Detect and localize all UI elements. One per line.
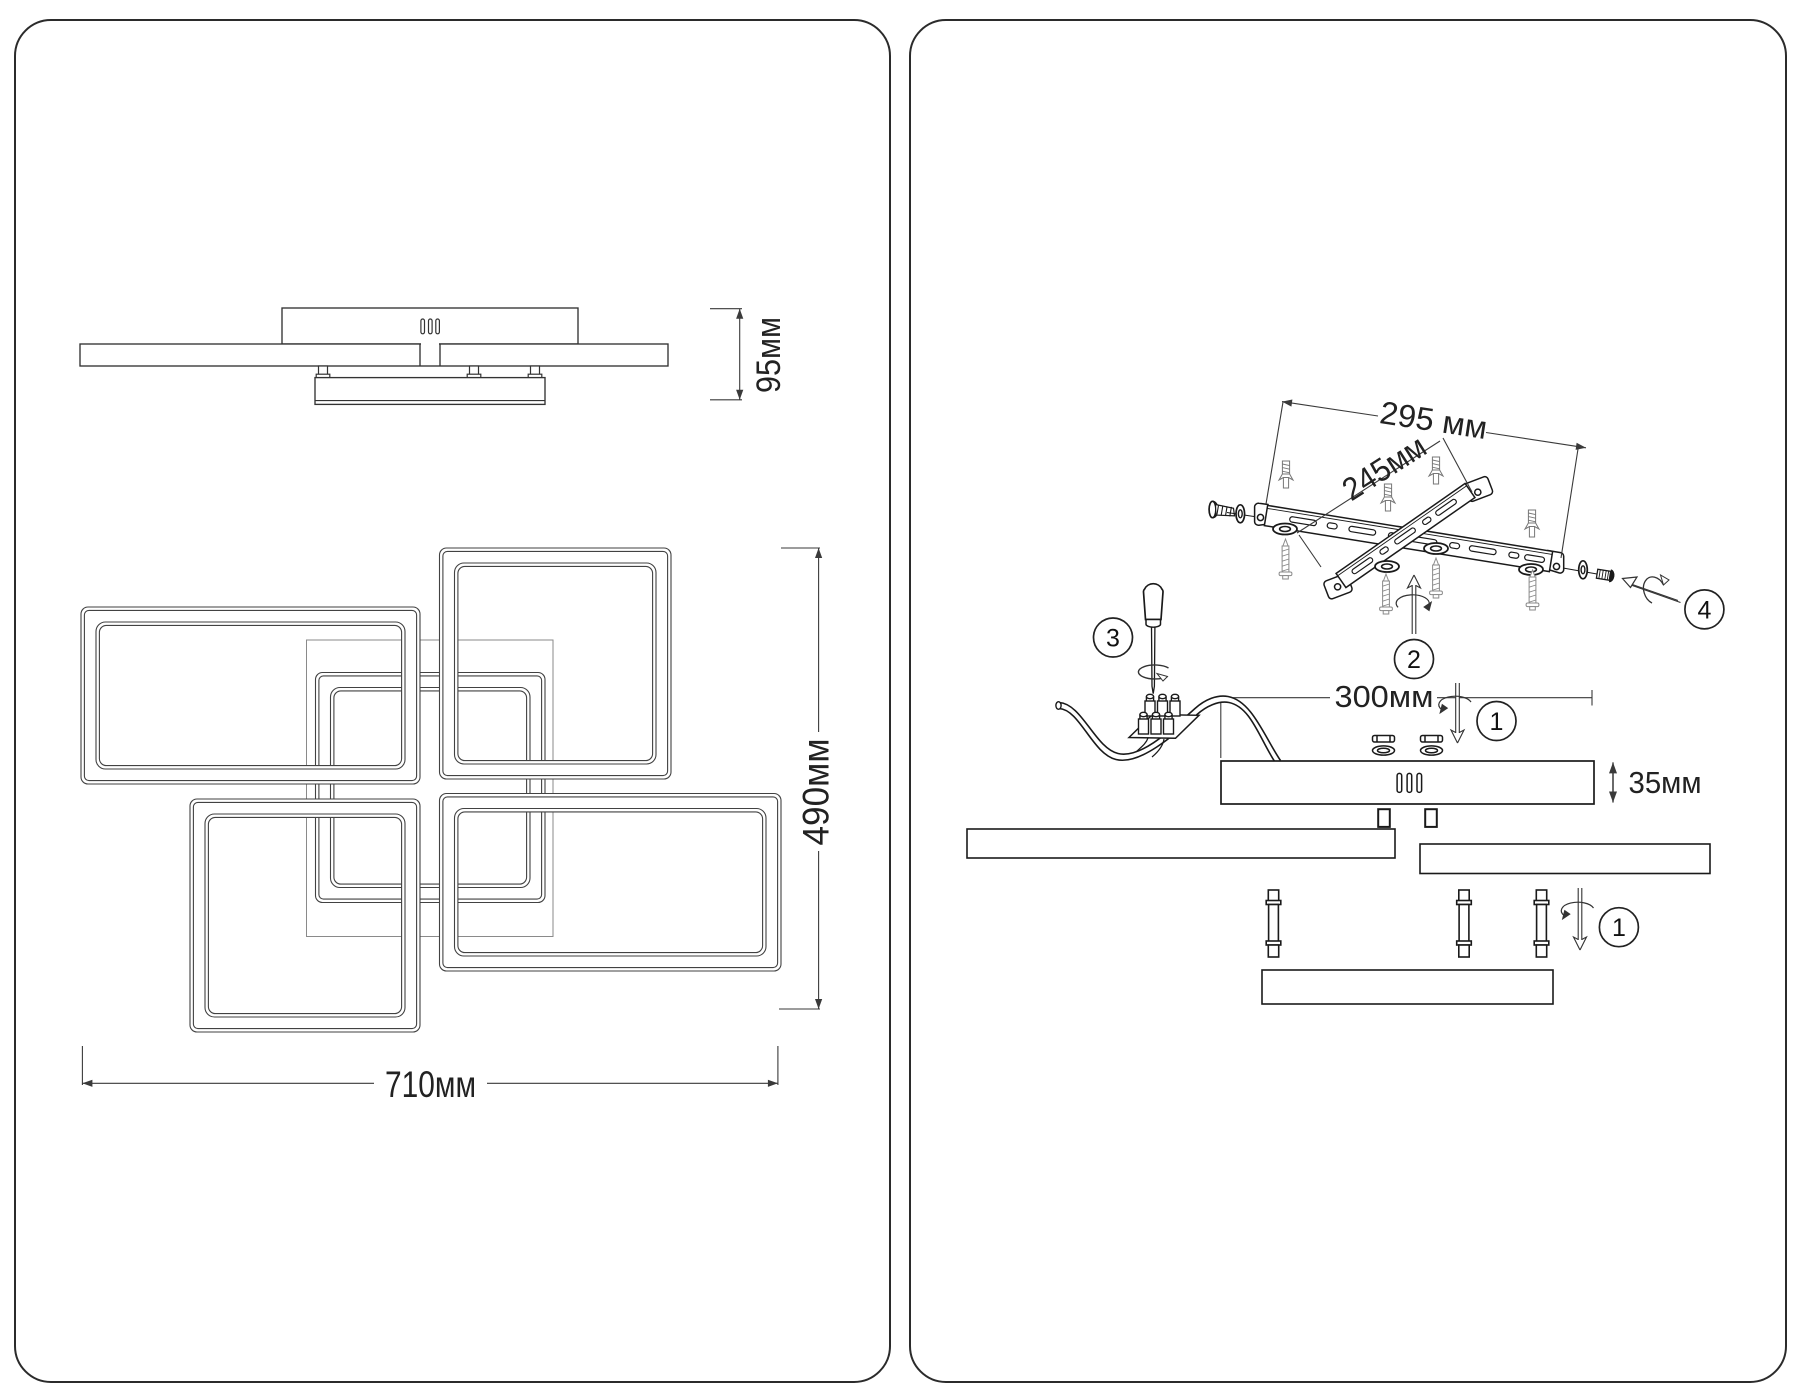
- svg-text:4: 4: [1697, 596, 1711, 624]
- svg-text:3: 3: [1106, 625, 1120, 653]
- svg-text:35мм: 35мм: [1629, 765, 1702, 800]
- svg-text:1: 1: [1490, 708, 1504, 736]
- svg-text:490мм: 490мм: [796, 739, 837, 846]
- svg-text:2: 2: [1407, 646, 1421, 674]
- svg-text:95мм: 95мм: [750, 317, 788, 393]
- svg-text:300мм: 300мм: [1335, 679, 1434, 714]
- svg-text:710мм: 710мм: [385, 1064, 476, 1105]
- svg-text:1: 1: [1612, 914, 1626, 942]
